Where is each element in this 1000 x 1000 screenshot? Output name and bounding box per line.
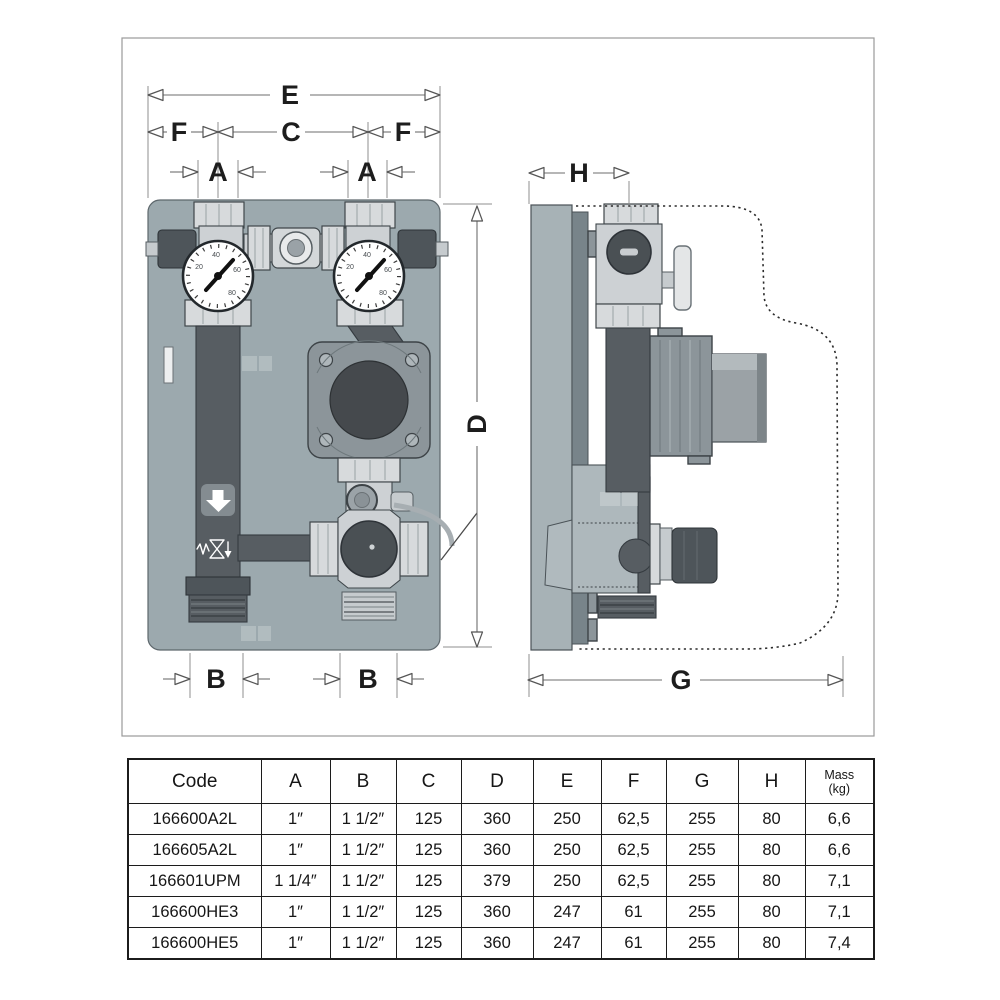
code-cell: 166600A2L xyxy=(128,804,261,835)
cell: 255 xyxy=(666,804,738,835)
cell: 62,5 xyxy=(601,835,666,866)
valve-side-cap xyxy=(398,230,436,268)
cell: 6,6 xyxy=(805,804,874,835)
bypass-bridge xyxy=(244,226,344,270)
cell: 1 1/4″ xyxy=(261,866,330,897)
col-header-c: C xyxy=(396,759,461,804)
col-header-e: E xyxy=(533,759,601,804)
cell: 125 xyxy=(396,804,461,835)
cell: 80 xyxy=(738,866,805,897)
cell: 360 xyxy=(461,928,533,960)
cell: 7,4 xyxy=(805,928,874,960)
col-header-b: B xyxy=(330,759,396,804)
gauge-tick-label: 20 xyxy=(346,264,354,271)
dim-G: G xyxy=(528,665,843,695)
return-thermometer: 20 40 60 80 xyxy=(334,241,404,311)
cell: 1 1/2″ xyxy=(330,928,396,960)
cell: 250 xyxy=(533,835,601,866)
table-row: 166600HE5 1″ 1 1/2″ 125 360 247 61 255 8… xyxy=(128,928,874,960)
cell: 80 xyxy=(738,897,805,928)
col-header-h: H xyxy=(738,759,805,804)
dim-D: D xyxy=(462,206,492,647)
page: 20 40 60 80 20 40 60 80 xyxy=(0,0,1000,1000)
gauge-tick-label: 80 xyxy=(228,290,236,297)
dim-H: H xyxy=(529,158,629,188)
flow-direction-arrow-icon xyxy=(201,484,235,516)
cell: 255 xyxy=(666,866,738,897)
cell: 80 xyxy=(738,804,805,835)
valve-nipple xyxy=(436,242,448,256)
code-cell: 166605A2L xyxy=(128,835,261,866)
cell: 1″ xyxy=(261,804,330,835)
dim-label-H: H xyxy=(569,158,589,188)
cell: 1 1/2″ xyxy=(330,897,396,928)
mass-header-line1: Mass xyxy=(806,768,874,782)
cell: 1″ xyxy=(261,835,330,866)
gauge-tick-label: 40 xyxy=(363,252,371,259)
code-cell: 166601UPM xyxy=(128,866,261,897)
dim-FCF: F C F xyxy=(148,117,440,147)
cell: 255 xyxy=(666,928,738,960)
cell: 125 xyxy=(396,866,461,897)
cell: 125 xyxy=(396,928,461,960)
col-header-mass: Mass (kg) xyxy=(805,759,874,804)
dim-label-E: E xyxy=(281,80,299,110)
col-header-code: Code xyxy=(128,759,261,804)
side-pump xyxy=(650,328,766,464)
cell: 360 xyxy=(461,897,533,928)
cell: 80 xyxy=(738,835,805,866)
cell: 379 xyxy=(461,866,533,897)
dim-label-G: G xyxy=(670,665,691,695)
dim-label-B-left: B xyxy=(206,664,226,694)
cell: 250 xyxy=(533,804,601,835)
capillary-leader xyxy=(441,513,477,560)
cell: 360 xyxy=(461,835,533,866)
cell: 250 xyxy=(533,866,601,897)
cell: 1″ xyxy=(261,928,330,960)
dim-label-C: C xyxy=(281,117,301,147)
connecting-pipe xyxy=(238,535,314,561)
cell: 7,1 xyxy=(805,866,874,897)
cell: 80 xyxy=(738,928,805,960)
col-header-f: F xyxy=(601,759,666,804)
valve-actuator-knob xyxy=(672,528,717,583)
code-cell: 166600HE5 xyxy=(128,928,261,960)
spec-table: Code A B C D E F G H Mass (kg) 166600A2L… xyxy=(127,758,875,960)
dim-B: B B xyxy=(163,664,424,694)
dim-E: E xyxy=(148,80,440,110)
table-row: 166600A2L 1″ 1 1/2″ 125 360 250 62,5 255… xyxy=(128,804,874,835)
cell: 62,5 xyxy=(601,804,666,835)
mixing-valve-knob xyxy=(341,521,397,577)
cell: 61 xyxy=(601,928,666,960)
cell: 62,5 xyxy=(601,866,666,897)
side-pipe xyxy=(606,328,650,492)
gauge-tick-label: 60 xyxy=(384,267,392,274)
side-ball-valve xyxy=(596,204,691,328)
gauge-tick-label: 80 xyxy=(379,290,387,297)
mounting-slot xyxy=(164,347,173,383)
cell: 247 xyxy=(533,928,601,960)
header-row: Code A B C D E F G H Mass (kg) xyxy=(128,759,874,804)
cell: 255 xyxy=(666,897,738,928)
dim-A: A A xyxy=(170,157,415,187)
dim-label-A-right: A xyxy=(357,157,377,187)
side-view xyxy=(531,204,838,650)
technical-drawing: 20 40 60 80 20 40 60 80 xyxy=(0,0,1000,745)
valve-nipple xyxy=(146,242,158,256)
wall-bracket xyxy=(545,520,572,590)
dim-label-F-right: F xyxy=(395,117,412,147)
cell: 61 xyxy=(601,897,666,928)
col-header-a: A xyxy=(261,759,330,804)
circulation-pump xyxy=(308,341,430,460)
front-view: 20 40 60 80 20 40 60 80 xyxy=(146,200,477,650)
cell: 1 1/2″ xyxy=(330,866,396,897)
cell: 247 xyxy=(533,897,601,928)
mass-header-line2: (kg) xyxy=(806,782,874,796)
cell: 1″ xyxy=(261,897,330,928)
pump-face xyxy=(330,361,408,439)
dim-label-D: D xyxy=(462,414,492,434)
cell: 255 xyxy=(666,835,738,866)
col-header-d: D xyxy=(461,759,533,804)
col-header-g: G xyxy=(666,759,738,804)
cell: 6,6 xyxy=(805,835,874,866)
code-cell: 166600HE3 xyxy=(128,897,261,928)
table-row: 166601UPM 1 1/4″ 1 1/2″ 125 379 250 62,5… xyxy=(128,866,874,897)
gauge-tick-label: 40 xyxy=(212,252,220,259)
table-row: 166605A2L 1″ 1 1/2″ 125 360 250 62,5 255… xyxy=(128,835,874,866)
cell: 125 xyxy=(396,897,461,928)
gauge-tick-label: 20 xyxy=(195,264,203,271)
table-row: 166600HE3 1″ 1 1/2″ 125 360 247 61 255 8… xyxy=(128,897,874,928)
dim-label-A-left: A xyxy=(208,157,228,187)
gauge-tick-label: 60 xyxy=(233,267,241,274)
cell: 360 xyxy=(461,804,533,835)
supply-thermometer: 20 40 60 80 xyxy=(183,241,253,311)
handwheel xyxy=(674,246,691,310)
cell: 125 xyxy=(396,835,461,866)
dim-label-F-left: F xyxy=(171,117,188,147)
cell: 7,1 xyxy=(805,897,874,928)
cell: 1 1/2″ xyxy=(330,804,396,835)
dim-label-B-right: B xyxy=(358,664,378,694)
cell: 1 1/2″ xyxy=(330,835,396,866)
